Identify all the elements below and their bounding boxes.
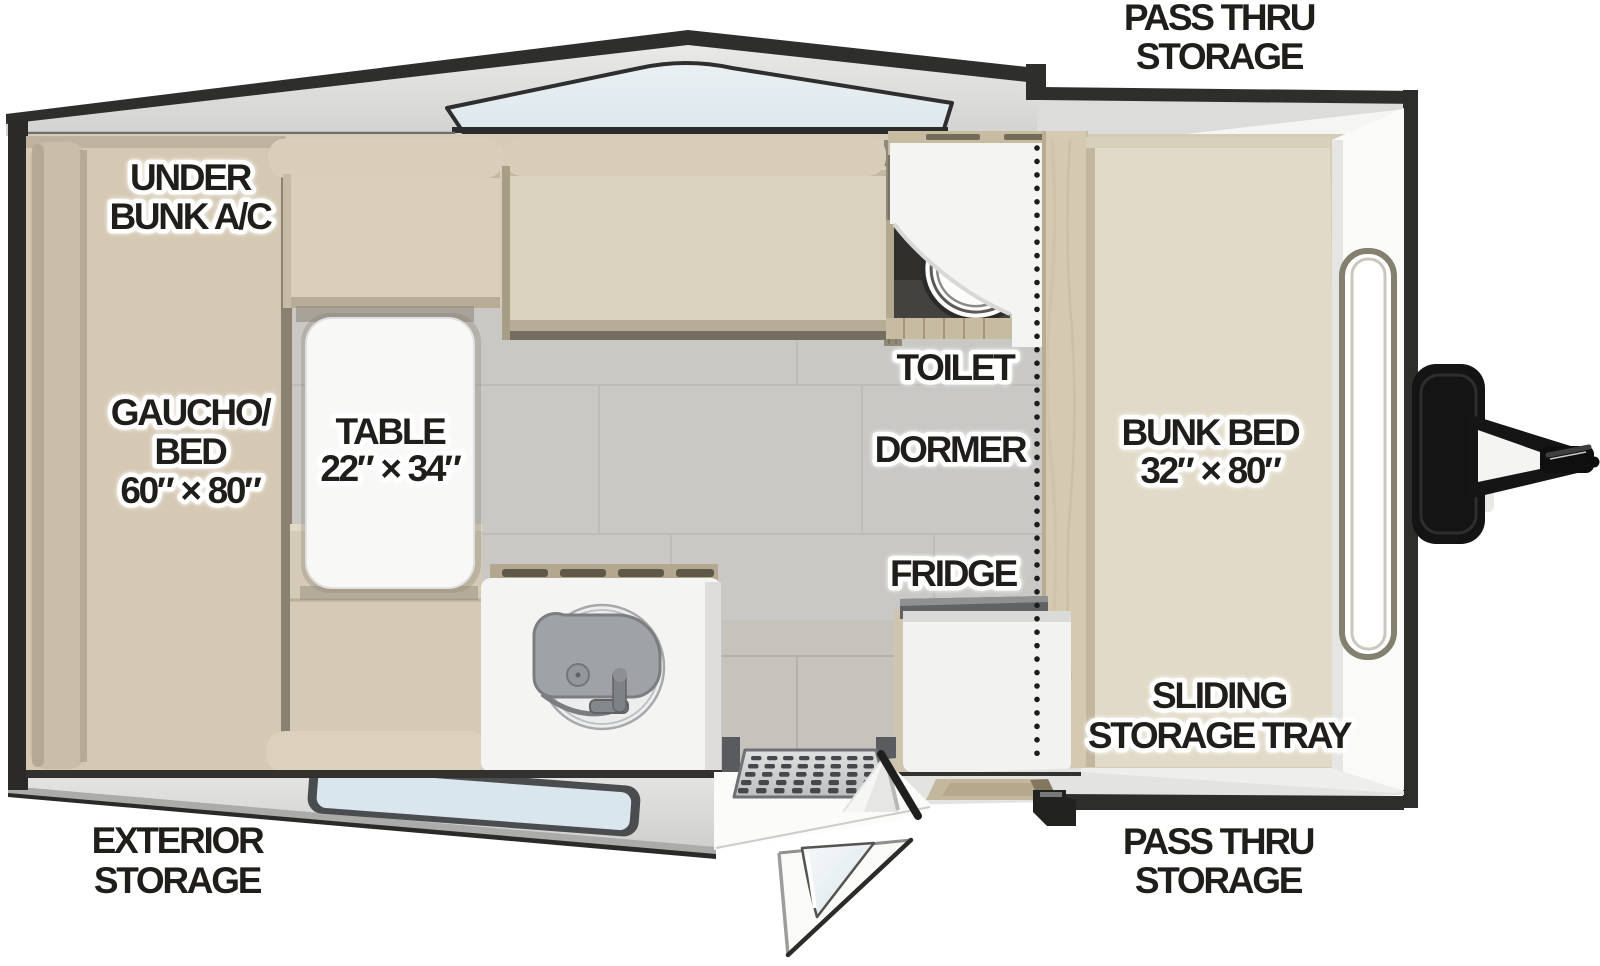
svg-text:60″ × 80″: 60″ × 80″	[120, 470, 262, 511]
svg-text:BED: BED	[154, 431, 227, 472]
svg-text:GAUCHO/: GAUCHO/	[111, 392, 272, 433]
svg-text:STORAGE: STORAGE	[1136, 36, 1304, 77]
svg-text:TOILET: TOILET	[896, 347, 1016, 388]
svg-text:TABLE: TABLE	[335, 411, 446, 452]
svg-text:BUNK BED: BUNK BED	[1122, 412, 1300, 453]
svg-text:STORAGE TRAY: STORAGE TRAY	[1088, 715, 1353, 756]
svg-text:SLIDING: SLIDING	[1152, 675, 1286, 716]
svg-text:22″ × 34″: 22″ × 34″	[320, 448, 462, 489]
svg-text:FRIDGE: FRIDGE	[890, 553, 1018, 594]
svg-text:PASS THRU: PASS THRU	[1123, 821, 1314, 862]
svg-text:DORMER: DORMER	[875, 429, 1027, 470]
svg-text:32″ × 80″: 32″ × 80″	[1140, 450, 1282, 491]
svg-text:EXTERIOR: EXTERIOR	[92, 820, 264, 861]
svg-text:STORAGE: STORAGE	[1135, 860, 1303, 901]
svg-text:STORAGE: STORAGE	[94, 860, 262, 901]
svg-text:BUNK A/C: BUNK A/C	[109, 196, 272, 237]
svg-text:UNDER: UNDER	[130, 157, 252, 198]
svg-text:PASS THRU: PASS THRU	[1124, 0, 1315, 38]
